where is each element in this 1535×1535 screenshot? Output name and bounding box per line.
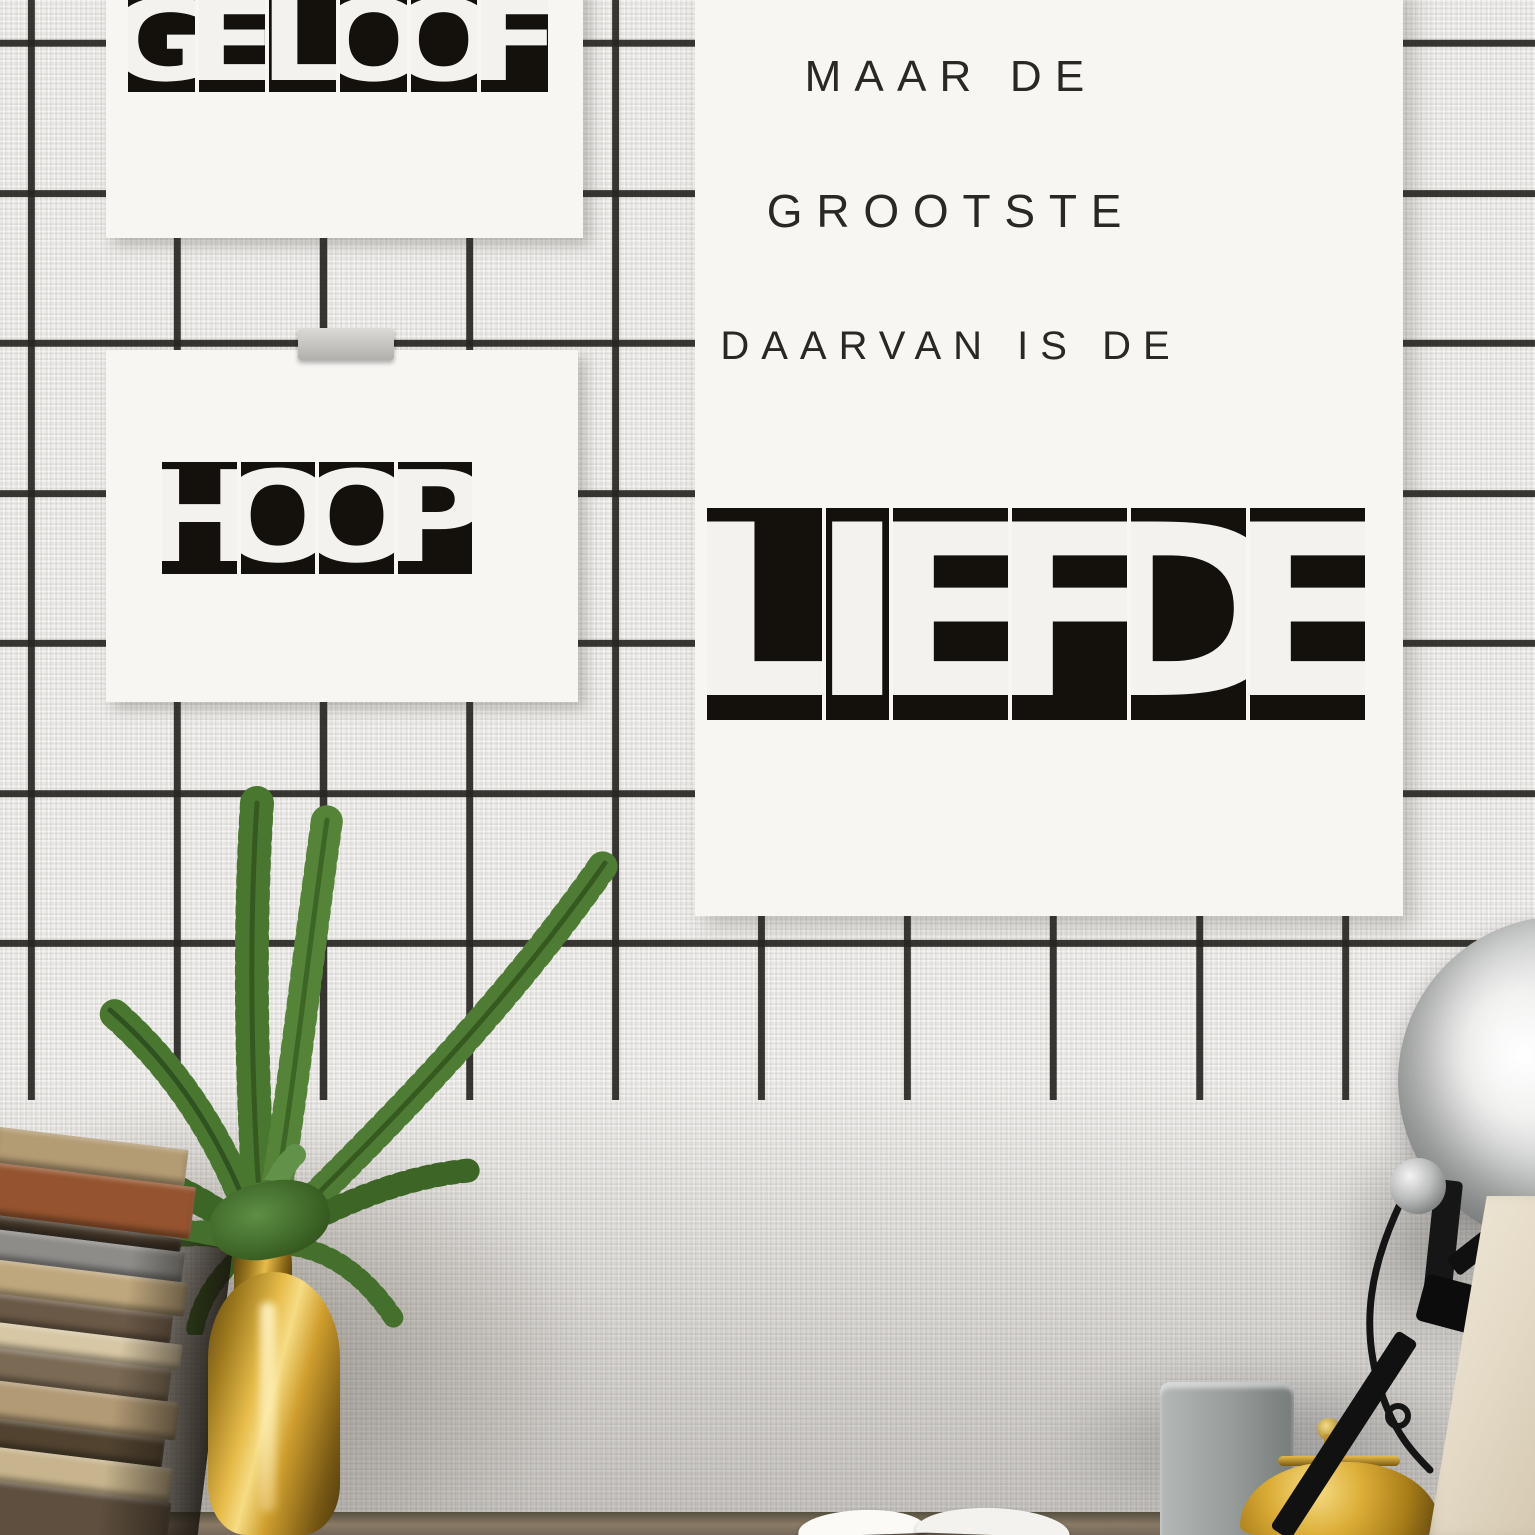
stencil-letter-box: O bbox=[340, 0, 407, 92]
interior-scene: GELOOF HOOP MAAR DE GROOTSTE DAARVAN IS … bbox=[0, 0, 1535, 1535]
poster-line-2: GROOTSTE bbox=[695, 184, 1207, 238]
vase-highlight bbox=[260, 1302, 276, 1512]
stencil-letter-box: I bbox=[826, 508, 889, 720]
poster-line-1: MAAR DE bbox=[695, 52, 1207, 102]
stencil-letter-box: E bbox=[199, 0, 266, 92]
stencil-letter-box: O bbox=[319, 462, 394, 574]
stencil-letter-box: L bbox=[707, 508, 822, 720]
stencil-letter-box: L bbox=[269, 0, 336, 92]
stencil-letter-box: F bbox=[481, 0, 548, 92]
poster-line-3: DAARVAN IS DE bbox=[695, 324, 1207, 369]
open-book bbox=[798, 1506, 1070, 1535]
stencil-letter-box: E bbox=[893, 508, 1008, 720]
binder-clip bbox=[298, 328, 394, 360]
geloof-stencil-word: GELOOF bbox=[128, 0, 548, 92]
stencil-letter-box: O bbox=[241, 462, 316, 574]
open-book-page bbox=[798, 1508, 927, 1535]
stencil-letter-box: H bbox=[162, 462, 237, 574]
card-hoop: HOOP bbox=[106, 350, 578, 702]
hoop-stencil-word: HOOP bbox=[162, 462, 472, 574]
poster-liefde: MAAR DE GROOTSTE DAARVAN IS DE LIEFDE bbox=[695, 0, 1403, 916]
liefde-stencil-word: LIEFDE bbox=[707, 508, 1365, 720]
stencil-letter-box: D bbox=[1131, 508, 1246, 720]
stencil-letter-box: E bbox=[1250, 508, 1365, 720]
card-geloof: GELOOF bbox=[106, 0, 583, 238]
stencil-letter-box: O bbox=[411, 0, 478, 92]
stencil-letter-box: G bbox=[128, 0, 195, 92]
stencil-letter-box: F bbox=[1012, 508, 1127, 720]
open-book-page bbox=[916, 1505, 1071, 1535]
gold-vase bbox=[208, 1232, 340, 1535]
lamp-knob bbox=[1390, 1158, 1446, 1214]
stencil-letter-box: P bbox=[398, 462, 473, 574]
book-stack bbox=[0, 1126, 228, 1535]
